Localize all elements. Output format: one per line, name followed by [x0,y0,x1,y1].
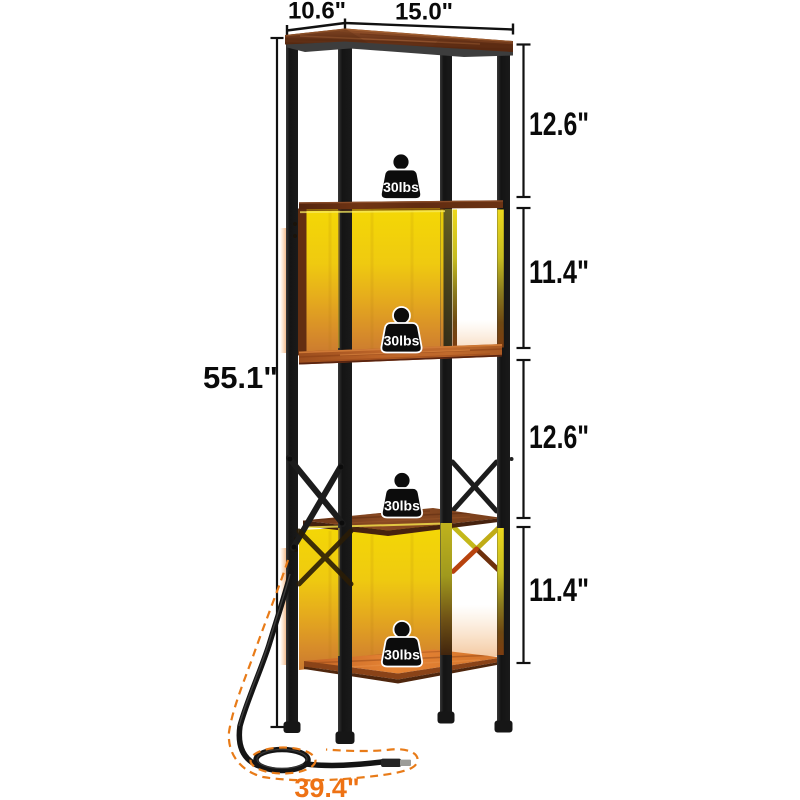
svg-text:39.4": 39.4" [294,773,359,800]
svg-text:12.6": 12.6" [529,419,589,455]
svg-text:11.4": 11.4" [529,572,589,608]
svg-text:10.6": 10.6" [288,0,346,25]
svg-text:11.4": 11.4" [529,254,589,290]
svg-text:15.0": 15.0" [395,0,453,26]
svg-text:12.6": 12.6" [529,106,589,142]
svg-text:55.1": 55.1" [203,360,278,395]
